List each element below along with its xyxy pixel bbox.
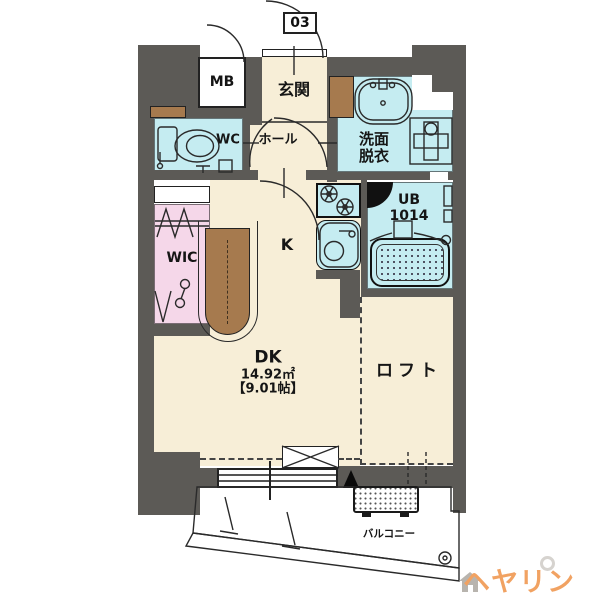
label-genkan: 玄関 — [278, 81, 310, 99]
stove-counter — [316, 183, 361, 218]
label-unit-bath: UB 1014 — [390, 192, 429, 224]
label-wic: WIC — [167, 250, 198, 266]
label-mb: MB — [210, 74, 235, 90]
ac-outdoor-unit — [353, 486, 419, 513]
label-dk-block: DK 14.92㎡ 【9.01帖】 — [232, 348, 303, 397]
label-ub-line2: 1014 — [390, 208, 429, 224]
unit-number: 03 — [290, 15, 309, 31]
shoe-cabinet — [329, 76, 354, 118]
balcony-rail-post-2 — [282, 512, 300, 549]
wall-k-loft-stub — [340, 270, 360, 318]
wall-window-left-jamb — [200, 468, 217, 488]
label-loft: ロフト — [376, 362, 442, 382]
balcony-drain — [439, 552, 451, 564]
wall-ub-bottom — [361, 289, 453, 297]
loft-ladder-centerline — [227, 240, 228, 324]
balcony-rail-post-1 — [220, 497, 238, 534]
label-washroom-line1: 洗面 — [359, 131, 389, 148]
wic-shelf — [154, 186, 210, 203]
wood-accent-left — [150, 106, 186, 118]
label-kitchen: K — [281, 236, 293, 254]
wall-under-washroom-2 — [448, 172, 453, 180]
loft-edge-dashed-right — [338, 458, 360, 460]
window-center-mullion — [269, 461, 271, 500]
kitchen-sink-counter — [316, 220, 361, 270]
wall-under-washroom — [337, 172, 430, 180]
watermark-text: ヘヤリンク — [463, 560, 600, 600]
ac-unit-foot-left — [362, 513, 371, 517]
balcony-drain-hole — [443, 556, 447, 560]
under-loft-storage-xbox — [282, 446, 339, 468]
floorplan-canvas: 03 MB 玄関 WC ホール 洗面 脱衣 UB 1014 WIC K DK 1… — [0, 0, 600, 600]
label-dk: DK — [232, 348, 303, 368]
balcony-window-track-1 — [219, 474, 336, 476]
wall-counter-stub — [316, 270, 340, 279]
loft-edge-dashed-left — [200, 458, 282, 460]
balcony-edge-concrete — [186, 533, 459, 581]
entrance-door-track — [262, 49, 327, 57]
wall-bottom-left-block — [152, 452, 200, 515]
label-dk-tatami: 【9.01帖】 — [232, 383, 303, 398]
label-hall: ホール — [258, 134, 297, 149]
balcony-floor — [193, 487, 459, 568]
unit-number-plate: 03 — [283, 12, 317, 34]
wall-right — [453, 45, 466, 513]
label-wc: WC — [216, 134, 240, 149]
ac-unit-foot-right — [400, 513, 409, 517]
label-ub-line1: UB — [390, 192, 429, 208]
watermark-logo: ヘヤリンク — [455, 548, 600, 600]
label-balcony: バルコニー — [363, 528, 415, 540]
wall-over-washroom — [337, 57, 412, 76]
wall-mb-genkan-strip — [246, 57, 262, 125]
wall-under-wc — [154, 170, 258, 180]
balcony-window-track-2 — [219, 480, 336, 482]
wall-under-hall-right — [306, 170, 337, 180]
label-washroom-line2: 脱衣 — [359, 148, 389, 165]
balcony-window — [217, 468, 338, 488]
hall-door-opening — [258, 170, 306, 180]
label-washroom: 洗面 脱衣 — [359, 131, 389, 166]
wall-below-mb — [198, 108, 246, 118]
bathtub-inner — [376, 244, 444, 281]
wall-notch-white-2 — [412, 92, 453, 110]
